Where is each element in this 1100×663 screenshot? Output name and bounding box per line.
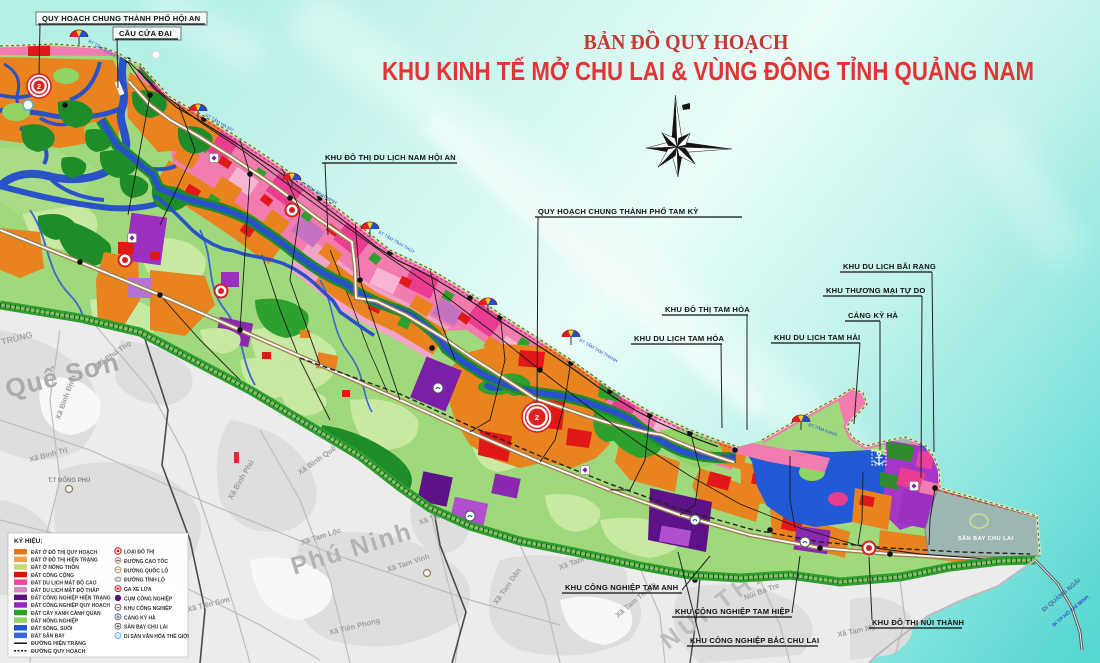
svg-text:KHU DU LỊCH TAM HÒA: KHU DU LỊCH TAM HÒA (634, 334, 724, 343)
svg-text:DI SẢN VĂN HÓA THẾ GIỚI: DI SẢN VĂN HÓA THẾ GIỚI (124, 632, 190, 640)
svg-text:ĐƯỜNG QUỐC LỘ: ĐƯỜNG QUỐC LỘ (124, 566, 168, 574)
svg-text:KÝ HIỆU:: KÝ HIỆU: (14, 536, 43, 545)
svg-text:T.T ĐÔNG PHÚ: T.T ĐÔNG PHÚ (48, 476, 90, 484)
svg-text:ĐẤT DU LỊCH MẬT ĐỘ THẤP: ĐẤT DU LỊCH MẬT ĐỘ THẤP (31, 586, 100, 594)
svg-text:LOẠI ĐÔ THỊ: LOẠI ĐÔ THỊ (124, 548, 155, 556)
svg-text:SÂN BAY CHU LAI: SÂN BAY CHU LAI (958, 535, 1013, 542)
svg-text:KHU CÔNG NGHIỆP BẮC CHU LAI: KHU CÔNG NGHIỆP BẮC CHU LAI (690, 636, 819, 645)
svg-text:CỤM CÔNG NGHIỆP: CỤM CÔNG NGHIỆP (124, 595, 173, 603)
svg-text:KHU ĐÔ THỊ NÚI THÀNH: KHU ĐÔ THỊ NÚI THÀNH (872, 618, 964, 627)
svg-text:CẦU CỬA ĐẠI: CẦU CỬA ĐẠI (119, 28, 172, 38)
svg-text:QUY HOẠCH CHUNG THÀNH PHỐ TAM: QUY HOẠCH CHUNG THÀNH PHỐ TAM KỲ (538, 206, 699, 216)
svg-text:ĐẤT CÂY XANH CẢNH QUAN: ĐẤT CÂY XANH CẢNH QUAN (31, 610, 101, 617)
svg-text:CẢNG KỲ HÀ: CẢNG KỲ HÀ (848, 311, 898, 320)
svg-text:KHU DU LỊCH TAM HẢI: KHU DU LỊCH TAM HẢI (774, 333, 860, 342)
svg-text:ĐẤT Ở ĐÔ THỊ HIỆN TRẠNG: ĐẤT Ở ĐÔ THỊ HIỆN TRẠNG (31, 556, 98, 564)
svg-text:ĐẤT Ở NÔNG THÔN: ĐẤT Ở NÔNG THÔN (31, 563, 79, 571)
svg-text:ĐẤT Ở ĐÔ THỊ QUY HOẠCH: ĐẤT Ở ĐÔ THỊ QUY HOẠCH (31, 548, 98, 556)
svg-text:KHU ĐÔ THỊ TAM HÒA: KHU ĐÔ THỊ TAM HÒA (665, 305, 750, 314)
svg-text:ĐẤT SÔNG, SUỐI: ĐẤT SÔNG, SUỐI (31, 624, 73, 632)
svg-text:2: 2 (535, 413, 539, 422)
svg-text:KHU ĐÔ THỊ DU LỊCH NAM HỘI AN: KHU ĐÔ THỊ DU LỊCH NAM HỘI AN (325, 153, 456, 162)
svg-text:ĐƯỜNG HIỆN TRẠNG: ĐƯỜNG HIỆN TRẠNG (31, 639, 86, 647)
svg-text:BẢN ĐỒ QUY HOẠCH: BẢN ĐỒ QUY HOẠCH (584, 30, 789, 54)
svg-text:KHU KINH TẾ MỞ CHU LAI & VÙNG: KHU KINH TẾ MỞ CHU LAI & VÙNG ĐÔNG TỈNH … (382, 55, 1034, 86)
svg-text:CẢNG KỲ HÀ: CẢNG KỲ HÀ (124, 614, 156, 621)
svg-text:ĐẤT CÔNG CỘNG: ĐẤT CÔNG CỘNG (31, 571, 74, 579)
svg-text:ĐƯỜNG CAO TỐC: ĐƯỜNG CAO TỐC (124, 557, 168, 565)
svg-text:ĐƯỜNG TỈNH LỘ: ĐƯỜNG TỈNH LỘ (124, 576, 165, 584)
svg-text:ĐẤT NÔNG NGHIỆP: ĐẤT NÔNG NGHIỆP (31, 616, 79, 624)
svg-text:2: 2 (37, 82, 41, 91)
svg-text:QUY HOẠCH CHUNG THÀNH PHỐ HỘI: QUY HOẠCH CHUNG THÀNH PHỐ HỘI AN (42, 13, 200, 23)
svg-text:ĐẤT SÂN BAY: ĐẤT SÂN BAY (31, 633, 65, 640)
svg-text:SÂN BAY CHU LAI: SÂN BAY CHU LAI (124, 624, 168, 631)
svg-text:ĐẤT DU LỊCH MẬT ĐỘ CAO: ĐẤT DU LỊCH MẬT ĐỘ CAO (31, 578, 97, 586)
svg-text:ĐẤT CÔNG NGHIỆP HIỆN TRẠNG: ĐẤT CÔNG NGHIỆP HIỆN TRẠNG (31, 594, 111, 602)
svg-text:KHU CÔNG NGHIỆP: KHU CÔNG NGHIỆP (124, 604, 172, 612)
svg-text:ĐẤT CÔNG NGHIỆP QUY HOẠCH: ĐẤT CÔNG NGHIỆP QUY HOẠCH (31, 601, 110, 609)
svg-text:GA XE LỬA: GA XE LỬA (124, 586, 152, 593)
svg-text:KHU DU LỊCH BÃI RẠNG: KHU DU LỊCH BÃI RẠNG (843, 262, 936, 271)
svg-text:ĐƯỜNG QUY HOẠCH: ĐƯỜNG QUY HOẠCH (31, 647, 86, 655)
svg-text:KHU CÔNG NGHIỆP TAM ANH: KHU CÔNG NGHIỆP TAM ANH (565, 583, 678, 592)
svg-text:KHU THƯƠNG MẠI TỰ DO: KHU THƯƠNG MẠI TỰ DO (826, 286, 925, 295)
